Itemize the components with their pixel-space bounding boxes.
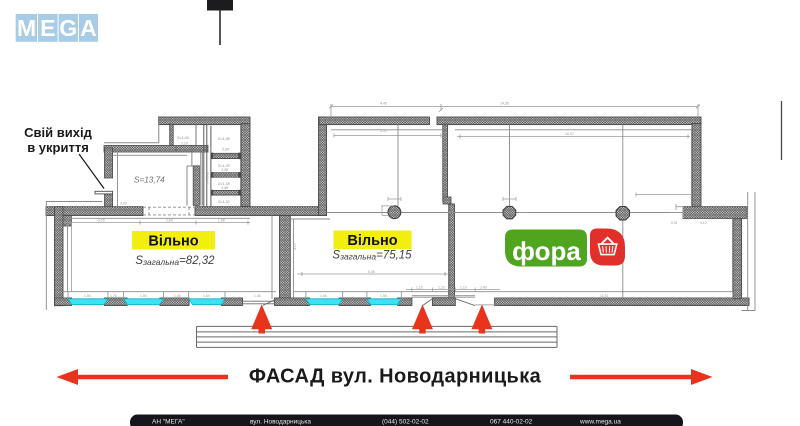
svg-text:1,30: 1,30 <box>221 168 228 172</box>
svg-text:4,10: 4,10 <box>700 221 707 225</box>
svg-text:067 440-02-02: 067 440-02-02 <box>490 419 533 426</box>
svg-text:1,76: 1,76 <box>110 294 117 298</box>
svg-text:1,66: 1,66 <box>320 294 327 298</box>
svg-text:3,00: 3,00 <box>120 202 127 206</box>
svg-text:Sзагальна=75,15: Sзагальна=75,15 <box>332 250 412 262</box>
svg-text:www.mega.ua: www.mega.ua <box>579 419 621 426</box>
svg-text:~3,05: ~3,05 <box>96 218 105 222</box>
svg-text:S=1,09: S=1,09 <box>177 136 189 140</box>
svg-text:1,60: 1,60 <box>174 294 181 298</box>
svg-text:Вільно: Вільно <box>148 234 198 250</box>
svg-text:Свій вихід: Свій вихід <box>24 125 92 140</box>
svg-text:2,40: 2,40 <box>480 285 487 289</box>
svg-text:1,80: 1,80 <box>84 294 91 298</box>
svg-text:в укриття: в укриття <box>27 140 89 155</box>
svg-text:14,35: 14,35 <box>500 102 509 106</box>
svg-text:2,00: 2,00 <box>220 206 228 210</box>
svg-text:A: A <box>80 15 97 41</box>
svg-text:S=2,14: S=2,14 <box>205 172 209 184</box>
svg-text:1,55: 1,55 <box>380 294 387 298</box>
svg-text:1,10: 1,10 <box>416 285 423 289</box>
svg-text:2,64: 2,64 <box>166 218 173 222</box>
svg-text:0,51: 0,51 <box>671 221 678 225</box>
svg-text:S=1,32: S=1,32 <box>218 200 230 204</box>
svg-text:АН "МЕГА": АН "МЕГА" <box>152 419 185 426</box>
svg-text:M: M <box>17 15 36 41</box>
svg-text:16,97: 16,97 <box>565 132 574 136</box>
svg-text:4,10: 4,10 <box>293 243 297 250</box>
svg-text:1,40: 1,40 <box>221 186 228 190</box>
svg-text:1,10: 1,10 <box>181 142 188 146</box>
svg-text:4,45: 4,45 <box>380 102 387 106</box>
svg-text:2,00: 2,00 <box>221 148 229 152</box>
svg-text:S=1,98: S=1,98 <box>218 137 230 141</box>
svg-text:(044) 502-02-02: (044) 502-02-02 <box>382 419 429 426</box>
svg-text:5,05: 5,05 <box>368 270 375 274</box>
svg-text:Вільно: Вільно <box>347 233 397 249</box>
svg-text:1,06: 1,06 <box>254 294 261 298</box>
svg-text:G: G <box>59 15 77 41</box>
svg-text:вул. Новодарницька: вул. Новодарницька <box>250 419 311 426</box>
svg-text:1,98: 1,98 <box>218 218 225 222</box>
svg-text:11,51: 11,51 <box>600 294 608 298</box>
svg-text:S=13,74: S=13,74 <box>134 176 165 185</box>
svg-text:1,10: 1,10 <box>460 285 467 289</box>
svg-text:1,64: 1,64 <box>203 294 210 298</box>
svg-text:Sзагальна=82,32: Sзагальна=82,32 <box>135 255 215 267</box>
svg-text:4,33: 4,33 <box>380 129 387 133</box>
svg-text:ФАСАД вул. Новодарницька: ФАСАД вул. Новодарницька <box>249 366 542 388</box>
svg-text:1,23: 1,23 <box>438 285 445 289</box>
svg-text:E: E <box>40 15 55 41</box>
svg-text:1,80: 1,80 <box>140 294 147 298</box>
svg-text:фора: фора <box>512 236 581 266</box>
